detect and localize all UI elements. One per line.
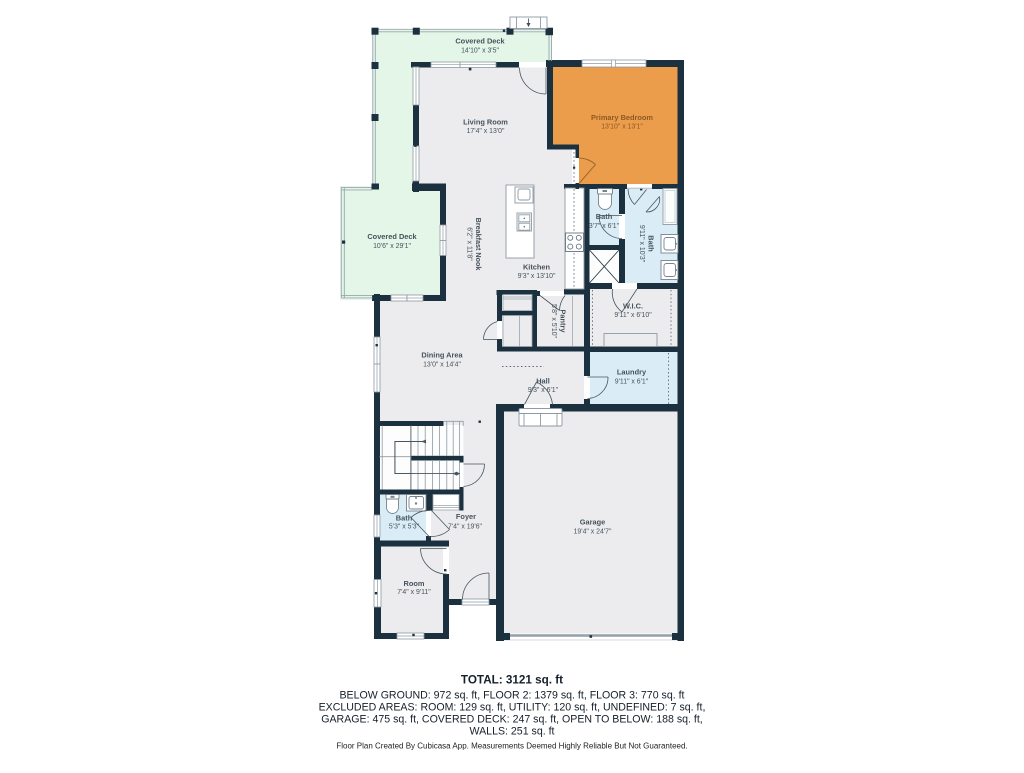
svg-text:W.I.C.: W.I.C. (623, 302, 643, 311)
svg-text:EXCLUDED AREAS: ROOM: 129 sq.: EXCLUDED AREAS: ROOM: 129 sq. ft, UTILIT… (319, 702, 706, 714)
svg-text:5'3" x 5'3": 5'3" x 5'3" (389, 523, 420, 530)
svg-text:Laundry: Laundry (617, 368, 647, 377)
svg-text:Kitchen: Kitchen (523, 263, 551, 272)
svg-text:9'11" x 10'3": 9'11" x 10'3" (638, 225, 645, 263)
svg-text:Bath: Bath (396, 514, 413, 523)
svg-text:GARAGE: 475 sq. ft, COVERED DE: GARAGE: 475 sq. ft, COVERED DECK: 247 sq… (321, 714, 703, 726)
svg-text:5'8" x 5'10": 5'8" x 5'10" (550, 304, 557, 339)
svg-text:BELOW GROUND: 972 sq. ft, FLOO: BELOW GROUND: 972 sq. ft, FLOOR 2: 1379 … (339, 690, 684, 702)
svg-text:Room: Room (404, 579, 425, 588)
svg-text:WALLS: 251 sq. ft: WALLS: 251 sq. ft (470, 726, 555, 738)
svg-text:19'4" x 24'7": 19'4" x 24'7" (574, 529, 612, 536)
svg-text:13'10" x 13'1": 13'10" x 13'1" (601, 124, 643, 131)
svg-text:Floor Plan Created By Cubicasa: Floor Plan Created By Cubicasa App. Meas… (336, 742, 687, 751)
svg-text:9'3" x 6'1": 9'3" x 6'1" (528, 387, 559, 394)
svg-text:Living Room: Living Room (463, 118, 508, 127)
svg-text:17'4" x 13'0": 17'4" x 13'0" (467, 128, 505, 135)
svg-text:Garage: Garage (580, 518, 605, 527)
svg-text:10'6" x 29'1": 10'6" x 29'1" (373, 243, 411, 250)
svg-text:Covered Deck: Covered Deck (455, 37, 505, 46)
svg-text:14'10" x 3'5": 14'10" x 3'5" (461, 48, 499, 55)
svg-text:6'2" x 11'8": 6'2" x 11'8" (466, 227, 473, 261)
svg-text:Foyer: Foyer (456, 512, 476, 521)
svg-text:Pantry: Pantry (559, 309, 568, 333)
svg-text:7'4" x 19'6": 7'4" x 19'6" (448, 524, 483, 531)
svg-text:9'3" x 13'10": 9'3" x 13'10" (518, 273, 556, 280)
svg-text:9'11" x 6'10": 9'11" x 6'10" (614, 312, 652, 319)
svg-text:Covered Deck: Covered Deck (367, 232, 417, 241)
svg-text:9'11" x 6'1": 9'11" x 6'1" (615, 379, 649, 386)
svg-text:Bath: Bath (596, 212, 613, 221)
svg-text:TOTAL: 3121 sq. ft: TOTAL: 3121 sq. ft (461, 674, 563, 687)
svg-text:Breakfast Nook: Breakfast Nook (474, 218, 483, 271)
svg-text:Primary Bedroom: Primary Bedroom (591, 113, 653, 122)
svg-text:Dining Area: Dining Area (421, 351, 463, 360)
svg-text:Bath: Bath (647, 235, 656, 252)
svg-text:3'7" x 6'1": 3'7" x 6'1" (589, 223, 620, 230)
svg-text:Hall: Hall (536, 377, 550, 386)
svg-text:7'4" x 9'11": 7'4" x 9'11" (397, 589, 431, 596)
svg-text:13'0" x 14'4": 13'0" x 14'4" (423, 361, 461, 368)
